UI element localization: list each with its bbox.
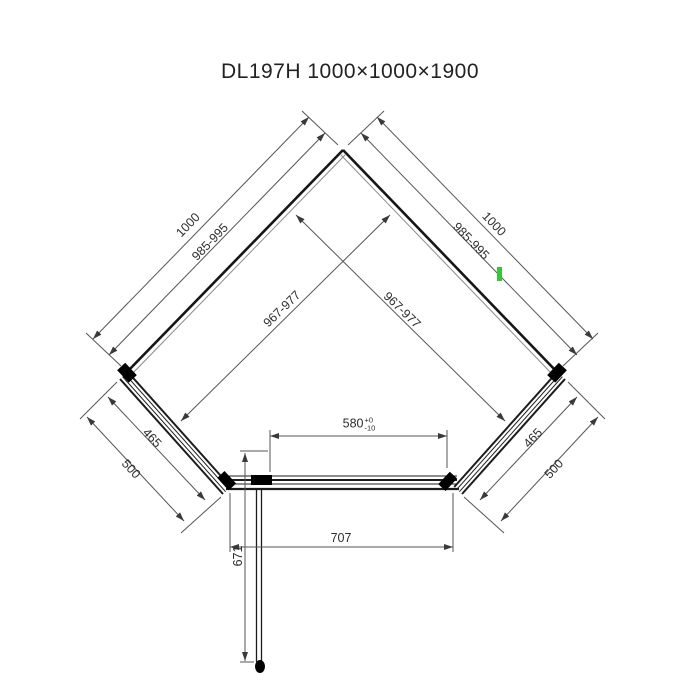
right-back-wall xyxy=(343,150,557,372)
dim-label-580-with-tolerance: 580+0-10 xyxy=(343,416,376,431)
left-wall-inner-edge xyxy=(131,154,346,375)
dim-left-465 xyxy=(108,397,205,500)
dim-580-tol-minus: -10 xyxy=(365,424,376,432)
shower-enclosure-plan-drawing xyxy=(0,0,700,700)
swing-door-open xyxy=(255,490,265,673)
dimension-lines xyxy=(87,117,598,661)
green-marker-tick xyxy=(497,267,502,281)
dim-label-707: 707 xyxy=(331,531,352,545)
dim-right-1000 xyxy=(377,117,593,339)
door-handle-knob xyxy=(255,660,265,673)
door-pivot-hinge xyxy=(251,475,272,485)
dim-580-value: 580 xyxy=(343,416,364,430)
dim-label-671: 671 xyxy=(231,546,245,567)
drawing-title: DL197H 1000×1000×1900 xyxy=(0,60,700,84)
left-back-wall xyxy=(127,150,343,372)
extension-lines xyxy=(80,111,605,662)
dim-580-tolerance: +0-10 xyxy=(365,417,376,432)
